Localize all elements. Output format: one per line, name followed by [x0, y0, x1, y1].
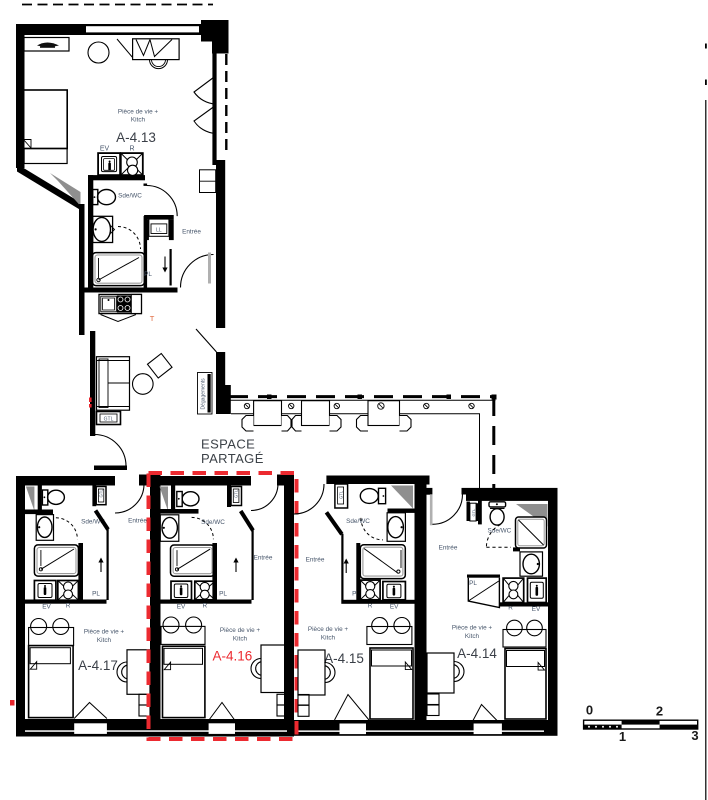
svg-text:Kitch: Kitch: [131, 117, 146, 124]
svg-text:ESPACE: ESPACE: [201, 437, 255, 452]
svg-text:Pièce de vie +: Pièce de vie +: [452, 625, 493, 632]
svg-text:0: 0: [586, 703, 593, 718]
svg-text:PL: PL: [219, 591, 227, 598]
svg-text:Entrée: Entrée: [182, 229, 201, 236]
svg-text:Kitch: Kitch: [321, 635, 336, 642]
svg-text:Pièce de vie +: Pièce de vie +: [84, 629, 125, 636]
svg-text:1: 1: [619, 729, 626, 744]
svg-text:Entrée: Entrée: [439, 545, 458, 552]
svg-text:R: R: [129, 146, 134, 153]
svg-text:Sde/WC: Sde/WC: [346, 518, 370, 525]
svg-text:PL: PL: [469, 580, 477, 587]
svg-text:A-4.14: A-4.14: [457, 646, 497, 661]
svg-text:A-4.17: A-4.17: [78, 658, 118, 673]
svg-text:GTL: GTL: [99, 489, 104, 498]
svg-text:Kitch: Kitch: [233, 636, 248, 643]
svg-text:Sde/WC: Sde/WC: [488, 528, 512, 535]
svg-text:A-4.16: A-4.16: [213, 649, 253, 664]
svg-text:EV: EV: [42, 604, 51, 611]
svg-text:Sde/WC: Sde/WC: [118, 193, 142, 200]
svg-text:Pièce de vie +: Pièce de vie +: [220, 627, 261, 634]
svg-text:R: R: [66, 603, 71, 610]
svg-text:A-4.13: A-4.13: [116, 130, 156, 145]
svg-text:PL: PL: [92, 591, 100, 598]
svg-text:EV: EV: [390, 604, 399, 611]
svg-text:Dégagements: Dégagements: [201, 378, 207, 410]
svg-text:PL: PL: [144, 271, 152, 278]
svg-text:LL: LL: [156, 228, 162, 234]
svg-text:Sde/WC: Sde/WC: [201, 519, 225, 526]
svg-text:PARTAGÉ: PARTAGÉ: [201, 451, 264, 466]
svg-text:Entrée: Entrée: [306, 557, 325, 564]
svg-text:GTL: GTL: [234, 489, 239, 498]
svg-text:Pièce de vie +: Pièce de vie +: [118, 109, 159, 116]
svg-text:R: R: [202, 603, 207, 610]
svg-text:T: T: [150, 314, 155, 323]
svg-text:GTL: GTL: [104, 417, 114, 423]
svg-text:EV: EV: [100, 146, 110, 153]
svg-text:EV: EV: [532, 606, 541, 613]
svg-text:Entrée: Entrée: [254, 555, 273, 562]
svg-text:Pièce de vie +: Pièce de vie +: [308, 626, 349, 633]
svg-text:Entrée: Entrée: [128, 518, 147, 525]
svg-text:GTL: GTL: [339, 490, 344, 499]
svg-text:Kitch: Kitch: [97, 637, 112, 644]
svg-text:GTL: GTL: [471, 508, 476, 517]
svg-text:EV: EV: [177, 604, 186, 611]
svg-text:2: 2: [656, 704, 663, 719]
svg-text:Kitch: Kitch: [465, 633, 480, 640]
svg-text:3: 3: [691, 728, 698, 743]
